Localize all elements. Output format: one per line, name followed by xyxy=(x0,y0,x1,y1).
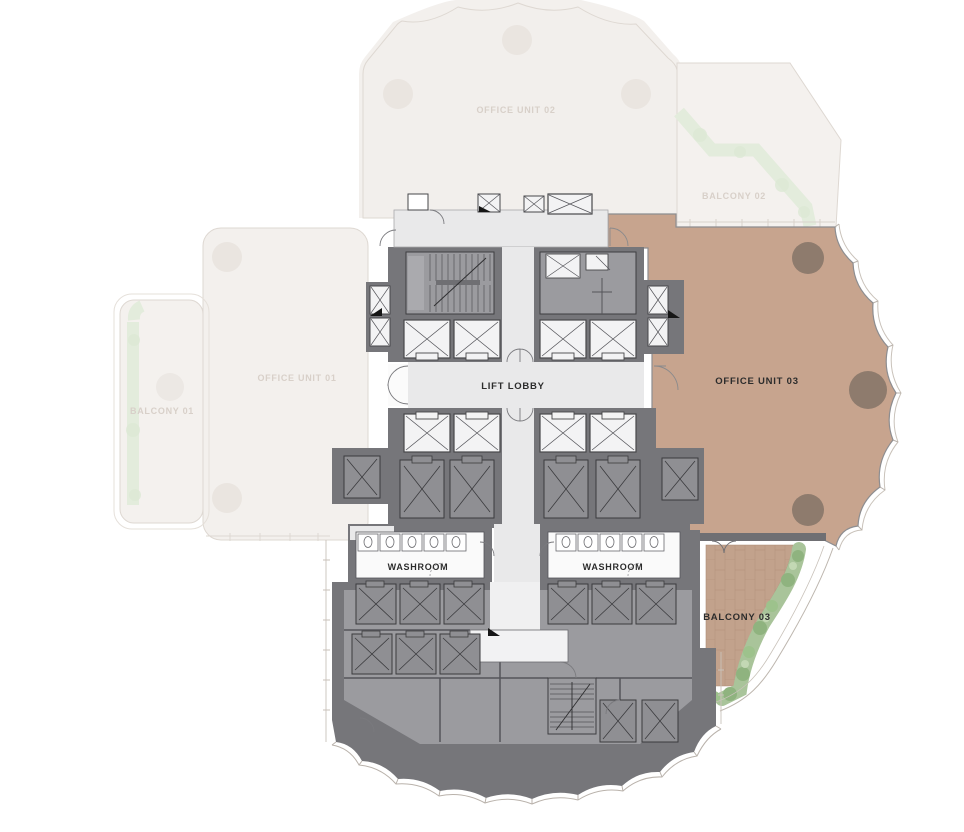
lift xyxy=(540,320,586,360)
wall xyxy=(700,533,826,541)
floor-plan-canvas: OFFICE UNIT 02 BALCONY 02 OFFICE UNIT 01… xyxy=(0,0,964,832)
lift xyxy=(548,581,588,624)
label-office-unit-02: OFFICE UNIT 02 xyxy=(476,105,555,115)
core xyxy=(323,194,724,804)
lift xyxy=(600,700,636,742)
lobby-west-opening xyxy=(388,364,408,406)
lift xyxy=(400,456,444,518)
shaft xyxy=(648,318,668,346)
label-balcony-03: BALCONY 03 xyxy=(703,612,771,623)
corridor-top xyxy=(394,210,608,247)
lift xyxy=(544,456,588,518)
lift xyxy=(352,631,392,674)
lift xyxy=(356,581,396,624)
lift xyxy=(642,700,678,742)
column xyxy=(502,25,532,55)
label-washroom-right: WASHROOM xyxy=(583,562,644,572)
corridor-lower xyxy=(502,408,534,524)
label-balcony-01: BALCONY 01 xyxy=(130,406,194,416)
column xyxy=(792,242,824,274)
lift xyxy=(400,581,440,624)
column xyxy=(156,373,184,401)
stair-core-upper xyxy=(406,252,494,314)
corridor-bottom xyxy=(490,582,540,630)
stair-core-bottom xyxy=(548,678,596,734)
lift xyxy=(590,412,636,452)
column xyxy=(621,79,651,109)
corridor-upper xyxy=(502,247,534,362)
lift xyxy=(454,412,500,452)
service-rooms-upper-right xyxy=(540,252,636,314)
lift xyxy=(404,320,450,360)
label-washroom-left: WASHROOM xyxy=(388,562,449,572)
shaft xyxy=(648,286,668,314)
balcony-02 xyxy=(677,63,841,229)
lift xyxy=(592,581,632,624)
column xyxy=(849,371,887,409)
label-balcony-02: BALCONY 02 xyxy=(702,191,766,201)
lift xyxy=(540,412,586,452)
lift xyxy=(450,456,494,518)
label-lift-lobby: LIFT LOBBY xyxy=(481,381,545,392)
shaft xyxy=(370,318,390,346)
bottom-lobby-room xyxy=(470,630,568,662)
lift xyxy=(440,631,480,674)
lift xyxy=(344,456,380,498)
column xyxy=(792,494,824,526)
label-office-unit-03: OFFICE UNIT 03 xyxy=(715,376,798,387)
lift xyxy=(590,320,636,360)
lift xyxy=(404,412,450,452)
column xyxy=(383,79,413,109)
lift xyxy=(396,631,436,674)
lift xyxy=(636,581,676,624)
label-office-unit-01: OFFICE UNIT 01 xyxy=(257,373,336,383)
column xyxy=(212,483,242,513)
corridor-washrooms xyxy=(494,524,540,582)
lift xyxy=(444,581,484,624)
column xyxy=(212,242,242,272)
floor-plan-svg: OFFICE UNIT 02 BALCONY 02 OFFICE UNIT 01… xyxy=(0,0,964,832)
lift xyxy=(454,320,500,360)
lift xyxy=(596,456,640,518)
lift xyxy=(662,458,698,500)
